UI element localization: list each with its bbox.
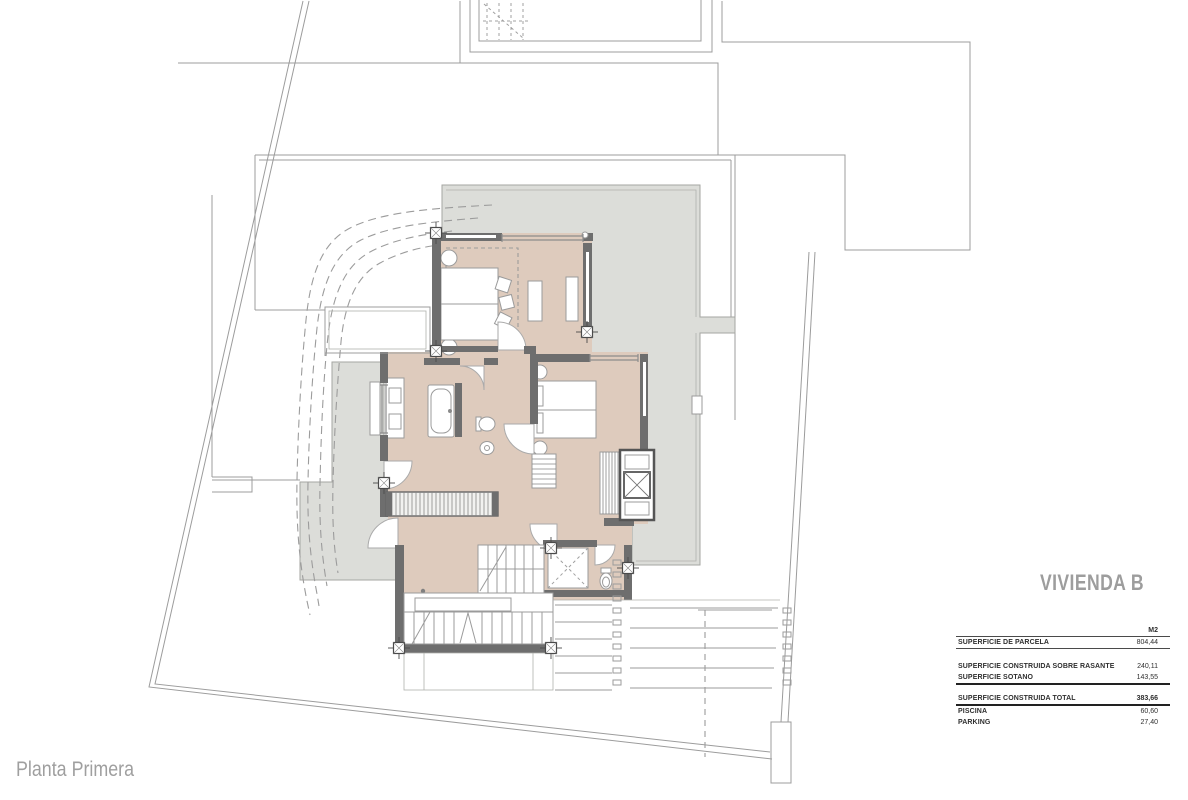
- table-row: PARKING 27,40: [956, 717, 1170, 728]
- shelf: [370, 382, 380, 435]
- floor-label: Planta Primera: [16, 758, 134, 782]
- unit-header: M2: [956, 626, 1170, 636]
- table-row: SUPERFICIE DE PARCELA 804,44: [956, 636, 1170, 649]
- sheet-title: VIVIENDA B: [1020, 570, 1164, 596]
- toilet: [479, 417, 495, 431]
- bathtub-faucet: [448, 409, 452, 413]
- table-row: SUPERFICIE SOTANO 143,55: [956, 672, 1170, 685]
- bidet: [480, 442, 494, 455]
- side-table: [533, 441, 547, 455]
- drawing-sheet: VIVIENDA B M2 SUPERFICIE DE PARCELA 804,…: [0, 0, 1188, 800]
- table-row: PISCINA 60,60: [956, 706, 1170, 717]
- table-row: SUPERFICIE CONSTRUIDA SOBRE RASANTE 240,…: [956, 661, 1170, 672]
- grille: [386, 492, 498, 516]
- planter: [325, 307, 430, 353]
- bench: [528, 281, 542, 321]
- upper-stairs-outline: [470, 0, 712, 52]
- side-table: [441, 250, 457, 266]
- console: [566, 277, 578, 321]
- area-table: M2 SUPERFICIE DE PARCELA 804,44 SUPERFIC…: [956, 626, 1170, 728]
- elevator: [620, 450, 654, 520]
- table-row: SUPERFICIE CONSTRUIDA TOTAL 383,66: [956, 693, 1170, 706]
